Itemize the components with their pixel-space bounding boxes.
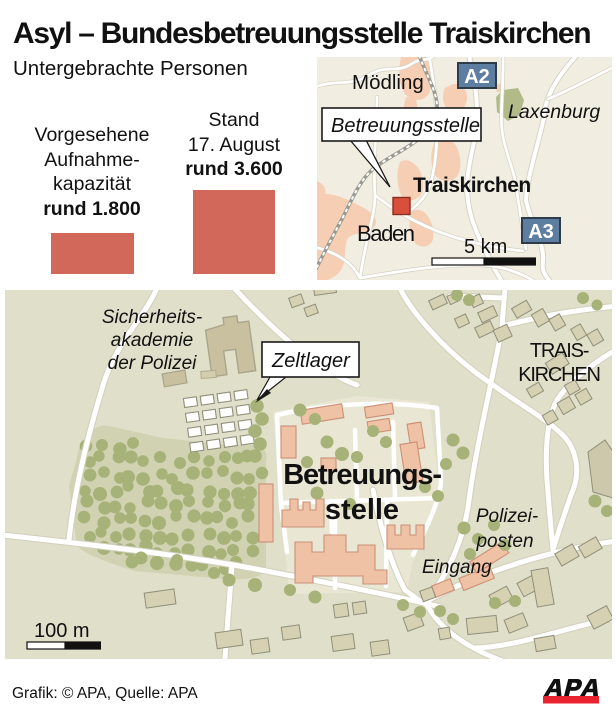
svg-text:Eingang: Eingang [422,557,492,578]
svg-text:KIRCHEN: KIRCHEN [518,364,600,386]
svg-text:Betreuungsstelle: Betreuungsstelle [331,115,480,137]
svg-text:A3: A3 [528,221,554,243]
svg-text:posten: posten [475,531,533,552]
svg-text:stelle: stelle [325,494,399,526]
svg-text:der Polizei: der Polizei [108,353,197,374]
svg-text:Laxenburg: Laxenburg [508,101,600,123]
svg-text:TRAIS-: TRAIS- [530,340,589,362]
svg-text:Mödling: Mödling [352,71,424,94]
svg-text:A2: A2 [464,66,490,88]
svg-text:Zeltlager: Zeltlager [271,350,351,372]
svg-text:100 m: 100 m [34,620,90,642]
svg-text:Traiskirchen: Traiskirchen [413,174,531,197]
svg-text:Polizei-: Polizei- [476,506,538,527]
svg-text:Sicherheits-: Sicherheits- [102,307,202,328]
svg-text:5 km: 5 km [464,236,507,258]
svg-text:Betreuungs-: Betreuungs- [283,459,441,491]
svg-text:akademie: akademie [111,330,193,351]
svg-text:Baden: Baden [357,221,414,246]
